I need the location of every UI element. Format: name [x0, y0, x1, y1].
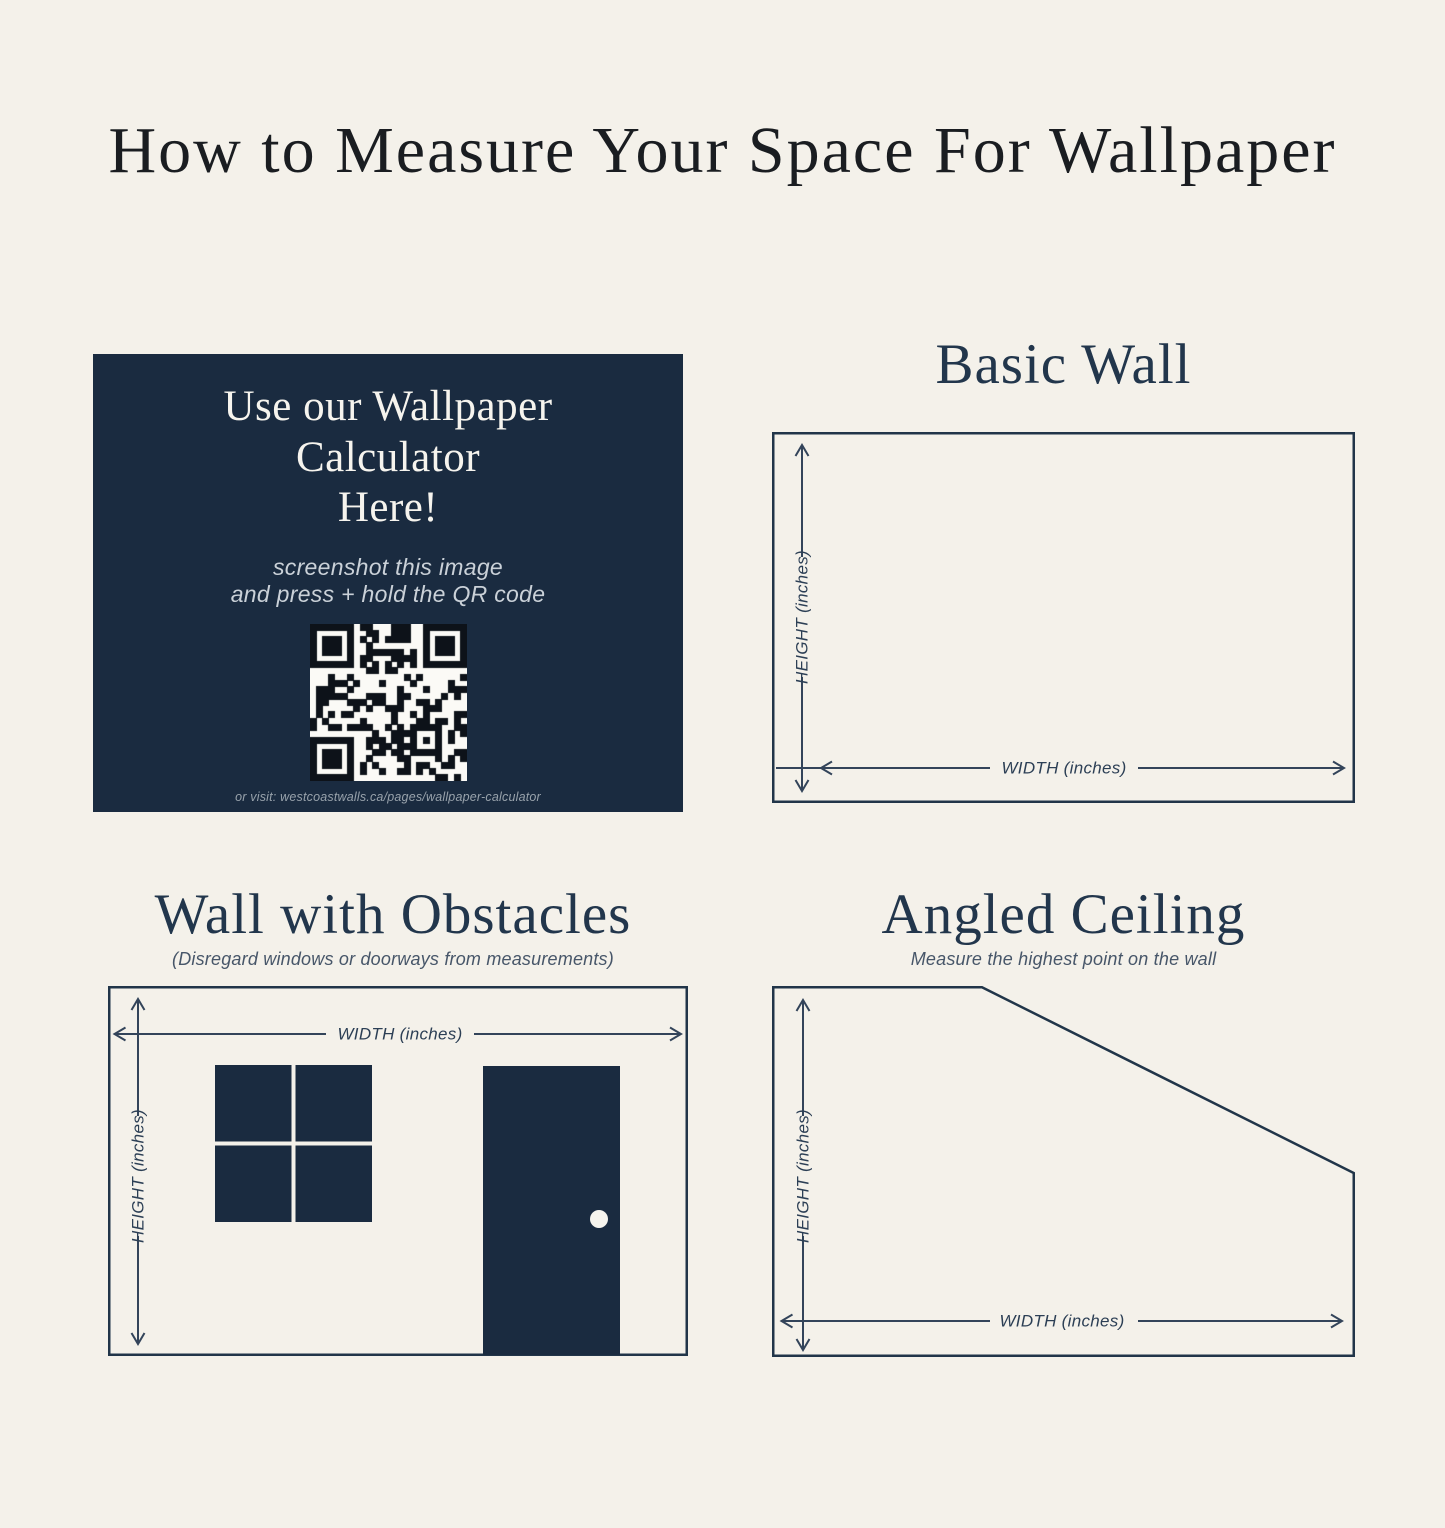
- wall-with-obstacles-diagram: HEIGHT (inches) WIDTH (inches): [108, 986, 688, 1356]
- width-arrow: WIDTH (inches): [115, 1025, 682, 1044]
- wall-with-obstacles-subtitle: (Disregard windows or doorways from meas…: [98, 950, 688, 968]
- height-label: HEIGHT (inches): [129, 1109, 148, 1243]
- door-knob: [590, 1210, 608, 1228]
- width-label: WIDTH (inches): [337, 1025, 462, 1044]
- wall-with-obstacles-title: Wall with Obstacles: [98, 886, 688, 943]
- angled-ceiling-title: Angled Ceiling: [772, 886, 1355, 943]
- angled-ceiling-diagram: HEIGHT (inches) WIDTH (inches): [772, 986, 1355, 1357]
- wallpaper-calculator-card: Use our Wallpaper Calculator Here! scree…: [93, 354, 683, 812]
- angled-wall-outline: [773, 987, 1354, 1356]
- door-shape: [483, 1066, 620, 1355]
- height-arrow: HEIGHT (inches): [129, 999, 148, 1344]
- width-label: WIDTH (inches): [999, 1312, 1124, 1331]
- qr-code[interactable]: [310, 624, 467, 781]
- angled-ceiling-subtitle: Measure the highest point on the wall: [772, 950, 1355, 968]
- basic-wall-diagram: HEIGHT (inches) WIDTH (inches): [772, 432, 1355, 803]
- height-arrow: HEIGHT (inches): [793, 445, 812, 791]
- page-title: How to Measure Your Space For Wallpaper: [0, 118, 1445, 184]
- infographic-page: How to Measure Your Space For Wallpaper …: [0, 0, 1445, 1528]
- basic-wall-outline: [773, 433, 1354, 802]
- window-shape: [215, 1065, 372, 1222]
- width-arrow: WIDTH (inches): [776, 759, 1344, 778]
- calculator-heading-line: Here!: [223, 483, 552, 534]
- calculator-instruction-line: screenshot this image: [231, 554, 546, 581]
- width-label: WIDTH (inches): [1001, 759, 1126, 778]
- calculator-heading: Use our Wallpaper Calculator Here!: [223, 382, 552, 534]
- calculator-url-caption: or visit: westcoastwalls.ca/pages/wallpa…: [235, 790, 541, 804]
- calculator-heading-line: Calculator: [223, 433, 552, 484]
- calculator-instruction-line: and press + hold the QR code: [231, 581, 546, 608]
- height-arrow: HEIGHT (inches): [794, 1000, 813, 1350]
- basic-wall-title: Basic Wall: [772, 336, 1355, 393]
- calculator-heading-line: Use our Wallpaper: [223, 382, 552, 433]
- calculator-instructions: screenshot this image and press + hold t…: [231, 554, 546, 608]
- width-arrow: WIDTH (inches): [782, 1312, 1343, 1331]
- qr-code-image[interactable]: [310, 624, 467, 781]
- height-label: HEIGHT (inches): [793, 550, 812, 684]
- height-label: HEIGHT (inches): [794, 1109, 813, 1243]
